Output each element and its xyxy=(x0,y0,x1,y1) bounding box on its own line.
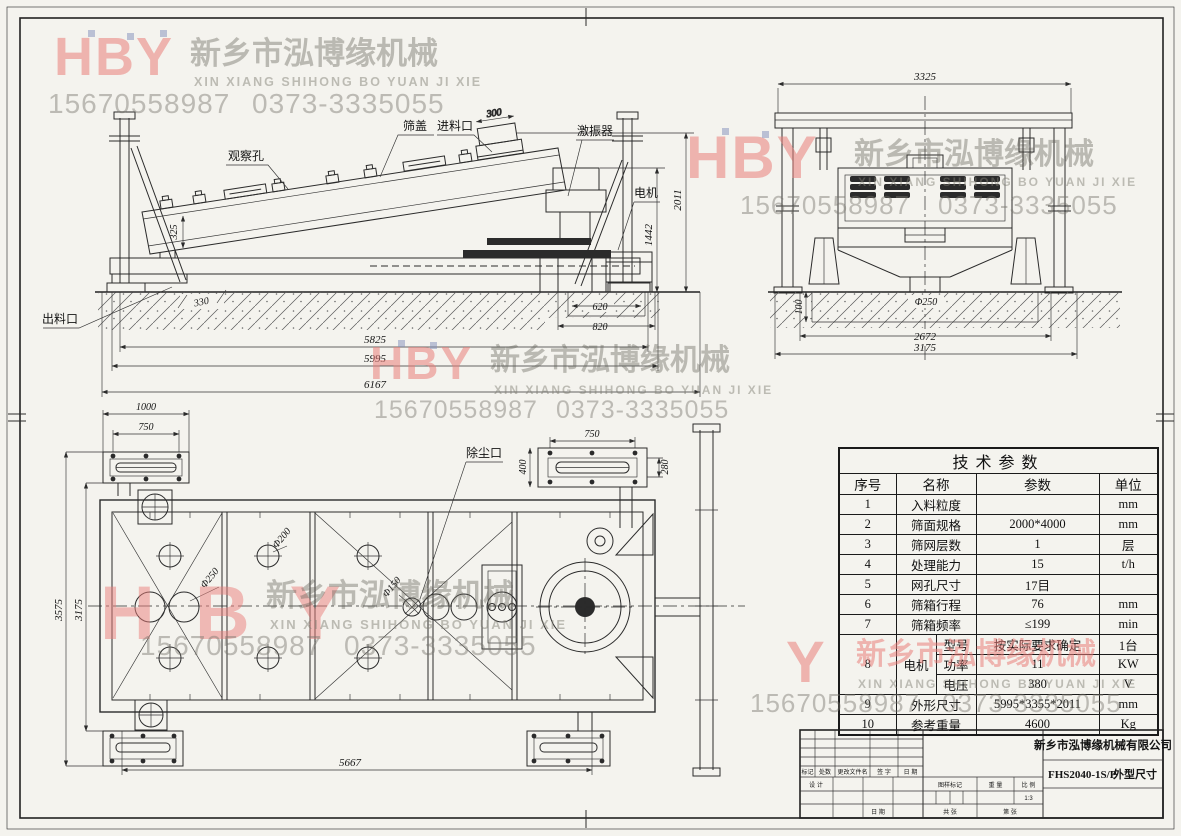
drawing-sheet: 300 观察孔 筛盖 进料口 xyxy=(0,0,1181,836)
label-motor: 电机 xyxy=(634,186,658,200)
dim-flange-1000: 1000 xyxy=(136,402,156,413)
spec-cell: 9 xyxy=(839,695,896,715)
dim-outlet-d250: Φ250 xyxy=(915,297,938,308)
spec-cell: 11 xyxy=(976,655,1099,675)
spec-cell: 电压 xyxy=(936,675,976,695)
spec-cell: 4600 xyxy=(976,715,1099,736)
side-view: 300 观察孔 筛盖 进料口 xyxy=(42,105,700,397)
spec-cell: 5 xyxy=(839,575,896,595)
spec-row-1: 1 入料粒度 mm xyxy=(839,495,1158,515)
spec-cell: min xyxy=(1099,615,1158,635)
spec-row-7: 7 筛箱频率 ≤199 min xyxy=(839,615,1158,635)
spec-cell: 5995*3355*2011 xyxy=(976,695,1099,715)
spec-cell: 功率 xyxy=(936,655,976,675)
spec-cell: 15 xyxy=(976,555,1099,575)
tb-company: 新乡市泓博缘机械有限公司 xyxy=(1034,738,1172,752)
spec-cell: 1 xyxy=(976,535,1099,555)
label-discharge-outlet: 出料口 xyxy=(42,312,78,326)
spec-cell: 76 xyxy=(976,595,1099,615)
label-dust-port: 除尘口 xyxy=(466,445,502,460)
spec-cell: 处理能力 xyxy=(896,555,976,575)
label-screen-cover: 筛盖 xyxy=(403,118,427,133)
end-view-frame xyxy=(774,113,1073,293)
title-block: 标记 处数 更改文件名 签 字 日 期 设 计 日 期 图样标记 重 量 比 例… xyxy=(800,730,1172,818)
spec-table-title: 技术参数 xyxy=(839,448,1158,474)
top-view-body xyxy=(88,500,745,712)
left-support-post xyxy=(107,112,186,292)
spec-cell xyxy=(976,495,1099,515)
dim-width-3575: 3575 xyxy=(53,599,65,623)
tb-label-count: 处数 xyxy=(819,768,831,776)
tb-drawing-no: FHS2040-1S/P xyxy=(1048,769,1117,781)
top-view: 1000 750 xyxy=(53,402,745,776)
tb-label-mark: 标记 xyxy=(801,768,813,776)
dim-box-325: 325 xyxy=(169,225,180,241)
dim-height-1442: 1442 xyxy=(643,224,655,247)
dim-dust-280: 280 xyxy=(660,460,671,475)
spec-row-2: 2 筛面规格 2000*4000 mm xyxy=(839,515,1158,535)
spec-cell: 8 xyxy=(839,635,896,695)
spec-cell: mm xyxy=(1099,595,1158,615)
top-left-flange: 1000 750 xyxy=(103,402,189,524)
spec-row-5: 5 网孔尺寸 17目 xyxy=(839,575,1158,595)
spec-cell: 1台 xyxy=(1099,635,1158,655)
spec-cell: ≤199 xyxy=(976,615,1099,635)
tb-label-date2: 日 期 xyxy=(871,808,885,816)
spec-cell: t/h xyxy=(1099,555,1158,575)
dim-span-3175: 3175 xyxy=(913,342,937,354)
spec-cell xyxy=(1099,575,1158,595)
tb-label-drawing-mark: 图样标记 xyxy=(938,781,962,789)
spec-cell: 型号 xyxy=(936,635,976,655)
dim-length-5825: 5825 xyxy=(364,334,387,346)
spec-cell: 层 xyxy=(1099,535,1158,555)
spec-cell: 1 xyxy=(839,495,896,515)
label-exciter: 激振器 xyxy=(577,124,613,138)
spec-cell: V xyxy=(1099,675,1158,695)
spec-cell: 2 xyxy=(839,515,896,535)
spec-cell: 参考重量 xyxy=(896,715,976,736)
spec-cell: 2000*4000 xyxy=(976,515,1099,535)
spec-header-name: 名称 xyxy=(896,474,976,495)
tb-label-change-file: 更改文件名 xyxy=(837,768,867,776)
tb-label-sheet-no: 第 张 xyxy=(1003,808,1017,816)
exciter-assembly xyxy=(463,168,611,258)
dim-pit-820: 820 xyxy=(593,322,608,333)
tb-label-signature: 签 字 xyxy=(877,768,891,776)
end-view: 3325 xyxy=(768,71,1122,360)
spec-row-4: 4 处理能力 15 t/h xyxy=(839,555,1158,575)
spec-header-no: 序号 xyxy=(839,474,896,495)
spec-row-10: 10 参考重量 4600 Kg xyxy=(839,715,1158,736)
tb-label-design: 设 计 xyxy=(809,781,823,789)
tb-label-scale: 比 例 xyxy=(1022,781,1036,789)
dim-dust-400: 400 xyxy=(518,460,529,475)
base-frame xyxy=(110,258,640,283)
spec-cell: 网孔尺寸 xyxy=(896,575,976,595)
spec-cell: 10 xyxy=(839,715,896,736)
dim-length-5995: 5995 xyxy=(364,353,387,365)
spec-row-3: 3 筛网层数 1 层 xyxy=(839,535,1158,555)
spec-row-9: 9 外形尺寸 5995*3355*2011 mm xyxy=(839,695,1158,715)
label-hole-200: Φ200 xyxy=(271,526,294,550)
spec-cell: 按实际要求确定 xyxy=(976,635,1099,655)
spec-cell: KW xyxy=(1099,655,1158,675)
screen-box-fittings xyxy=(159,149,472,209)
feed-inlet-box: 300 xyxy=(471,105,524,160)
spec-header-unit: 单位 xyxy=(1099,474,1158,495)
spec-header-value: 参数 xyxy=(976,474,1099,495)
spec-cell: 筛网层数 xyxy=(896,535,976,555)
spec-cell: 外形尺寸 xyxy=(896,695,976,715)
spec-cell: 电机 xyxy=(896,635,936,695)
spec-cell: 17目 xyxy=(976,575,1099,595)
spec-row-6: 6 筛箱行程 76 mm xyxy=(839,595,1158,615)
spec-cell: 380 xyxy=(976,675,1099,695)
label-hole-250: Φ250 xyxy=(199,566,222,590)
spec-cell: Kg xyxy=(1099,715,1158,736)
tb-drawing-title: 外型尺寸 xyxy=(1112,767,1157,781)
tb-label-date: 日 期 xyxy=(904,768,918,776)
dim-flange-750: 750 xyxy=(139,422,154,433)
spec-cell: 筛箱频率 xyxy=(896,615,976,635)
dim-pit-620: 620 xyxy=(593,302,608,313)
tb-scale-value: 1:3 xyxy=(1024,796,1033,802)
spec-cell: 筛箱行程 xyxy=(896,595,976,615)
spec-cell: 3 xyxy=(839,535,896,555)
spec-cell: mm xyxy=(1099,495,1158,515)
spec-cell: 筛面规格 xyxy=(896,515,976,535)
dust-port-flange: 750 400 280 xyxy=(518,429,671,528)
tb-label-weight: 重 量 xyxy=(989,781,1003,789)
dim-length-6167: 6167 xyxy=(364,379,387,391)
spec-table: 技术参数 序号 名称 参数 单位 1 入料粒度 mm 2 筛面规格 2000*4… xyxy=(838,447,1159,736)
label-observation-hole: 观察孔 xyxy=(228,149,264,163)
dim-span-5667: 5667 xyxy=(339,757,362,769)
label-feed-inlet: 进料口 xyxy=(437,119,473,133)
dim-width-3325: 3325 xyxy=(913,71,937,83)
spec-cell: 入料粒度 xyxy=(896,495,976,515)
dim-width-3175: 3175 xyxy=(73,599,85,623)
spec-cell: mm xyxy=(1099,695,1158,715)
screen-holes xyxy=(135,542,477,672)
dim-height-2011: 2011 xyxy=(672,189,684,210)
spec-cell: mm xyxy=(1099,515,1158,535)
spec-cell: 4 xyxy=(839,555,896,575)
spec-cell: 7 xyxy=(839,615,896,635)
observation-cover xyxy=(224,184,267,199)
spec-cell: 6 xyxy=(839,595,896,615)
tb-label-sheets-total: 共 张 xyxy=(943,808,957,816)
spec-row-8a: 8 电机 型号 按实际要求确定 1台 xyxy=(839,635,1158,655)
dim-dust-750: 750 xyxy=(585,429,600,440)
dim-pit-100: 100 xyxy=(794,300,805,315)
